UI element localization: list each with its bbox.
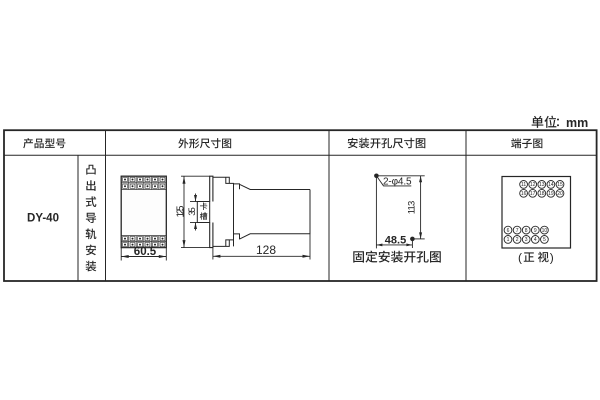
svg-text:2-φ4.5: 2-φ4.5 <box>383 177 412 188</box>
svg-text:6: 6 <box>507 228 510 234</box>
svg-text:128: 128 <box>256 243 276 257</box>
svg-text:60.5: 60.5 <box>134 246 157 258</box>
svg-text:113: 113 <box>407 201 418 215</box>
svg-text:20: 20 <box>557 191 563 197</box>
svg-text:18: 18 <box>539 191 545 197</box>
svg-text:10: 10 <box>542 228 548 234</box>
svg-text:12: 12 <box>530 182 536 188</box>
svg-text:1: 1 <box>507 237 510 243</box>
svg-text:125: 125 <box>175 205 186 217</box>
svg-text:13: 13 <box>539 182 545 188</box>
svg-text:): ) <box>550 251 554 265</box>
svg-text:mm: mm <box>566 116 588 130</box>
svg-text:3: 3 <box>525 237 528 243</box>
svg-text:11: 11 <box>521 182 526 188</box>
svg-text:8: 8 <box>525 228 528 234</box>
svg-text:48.5: 48.5 <box>385 234 406 246</box>
svg-text:DY-40: DY-40 <box>27 213 59 225</box>
svg-text:14: 14 <box>548 182 554 188</box>
svg-text:16: 16 <box>521 191 527 197</box>
svg-text:19: 19 <box>548 191 554 197</box>
svg-text:7: 7 <box>516 228 519 234</box>
svg-text:9: 9 <box>534 228 537 234</box>
svg-text:17: 17 <box>530 191 536 197</box>
svg-text:2: 2 <box>516 237 519 243</box>
svg-text:15: 15 <box>557 182 563 188</box>
svg-text:5: 5 <box>543 237 546 243</box>
svg-text:4: 4 <box>534 237 537 243</box>
svg-text:35: 35 <box>187 207 197 216</box>
svg-text:(: ( <box>518 251 522 265</box>
